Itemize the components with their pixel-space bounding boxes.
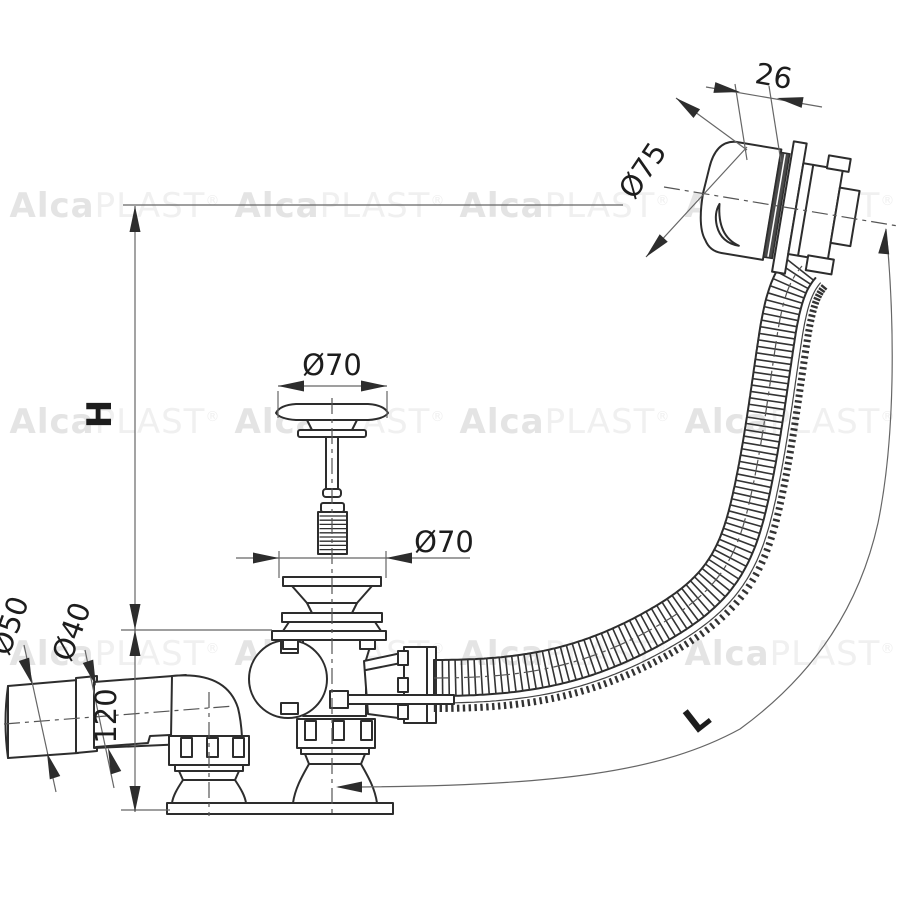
- hose-tooth: [787, 451, 794, 452]
- hose-tooth: [621, 674, 624, 680]
- hose-tooth: [771, 525, 778, 527]
- hose-tooth: [759, 561, 765, 564]
- hose-tooth: [810, 310, 817, 312]
- rod-block: [330, 691, 348, 708]
- dimension-arrow: [386, 553, 412, 564]
- hose-tooth: [522, 700, 523, 707]
- base-plate: [167, 803, 393, 814]
- hose-tooth: [761, 555, 767, 558]
- watermark-text: AlcaPLAST®: [685, 634, 896, 674]
- technical-drawing-page: AlcaPLAST®AlcaPLAST®AlcaPLAST®AlcaPLAST®…: [0, 0, 900, 900]
- hose-inner-edge: [434, 255, 788, 660]
- dimension-arrow: [673, 94, 700, 118]
- dim-label-plug-d70: Ø70: [302, 348, 362, 382]
- hose-tooth: [793, 412, 800, 413]
- hose-tooth: [534, 698, 535, 705]
- hose-tooth: [505, 702, 506, 709]
- hose-tooth: [746, 584, 752, 588]
- hose-tooth: [575, 689, 577, 696]
- hose-tooth: [790, 435, 797, 436]
- tee-nut-tooth: [398, 651, 408, 665]
- dim-label-strainer-d70: Ø70: [414, 525, 474, 559]
- hose-tooth: [593, 684, 595, 691]
- hose-tooth: [493, 703, 494, 710]
- hose-tooth: [742, 590, 748, 594]
- tee-nut-tooth: [398, 678, 408, 692]
- nut-slot: [181, 738, 192, 757]
- watermark-text: AlcaPLAST®: [460, 402, 671, 442]
- hose-tooth: [794, 407, 801, 408]
- hose-tooth: [805, 330, 812, 331]
- dim-label-120: 120: [89, 688, 123, 743]
- hose-tooth: [598, 682, 600, 689]
- hose-tooth: [804, 340, 811, 341]
- hose-tooth: [791, 429, 798, 430]
- dimension-arrow: [878, 228, 891, 255]
- hose-tooth: [528, 699, 529, 706]
- hose-tooth: [679, 644, 683, 650]
- hose-tooth: [791, 423, 798, 424]
- dimension-arrow: [278, 381, 304, 392]
- nut-slot: [233, 738, 244, 757]
- hose-rib: [723, 528, 757, 540]
- hose-tooth: [785, 463, 792, 464]
- hose-tooth: [789, 440, 796, 441]
- hose-tooth: [792, 418, 799, 419]
- hose-tooth: [806, 325, 813, 326]
- dim-label-l: L: [676, 697, 718, 742]
- knob-clamp: [806, 255, 834, 274]
- hose-tooth: [773, 519, 780, 521]
- bath-waste-overflow-drawing: AlcaPLAST®AlcaPLAST®AlcaPLAST®AlcaPLAST®…: [0, 0, 900, 900]
- hose-rib: [719, 539, 752, 553]
- hose-tooth: [756, 567, 762, 570]
- hose-tooth: [517, 701, 518, 708]
- hose-tooth: [800, 368, 807, 369]
- hose-tooth: [807, 320, 814, 321]
- hose-tooth: [710, 623, 714, 628]
- dimension-arrow: [253, 553, 279, 564]
- tee-nut-tooth: [398, 705, 408, 719]
- plate-tab: [360, 640, 375, 649]
- hose-tooth: [499, 703, 500, 710]
- nut-slot: [333, 721, 344, 740]
- hose-tooth: [812, 302, 819, 304]
- watermark-text: AlcaPLAST®: [10, 634, 221, 674]
- hose-tooth: [766, 543, 773, 545]
- hose-tooth: [788, 446, 795, 447]
- dim-label-h: H: [80, 400, 120, 428]
- hose-tooth: [786, 457, 793, 458]
- hose-tooth: [796, 395, 803, 396]
- hose-tooth: [803, 346, 810, 347]
- nut-slot: [305, 721, 316, 740]
- watermark-text: AlcaPLAST®: [10, 186, 221, 226]
- hose-tooth: [798, 379, 805, 380]
- hose-tooth: [604, 680, 606, 687]
- hose-tooth: [729, 605, 734, 610]
- hose-tooth: [734, 600, 739, 605]
- hose-tooth: [738, 595, 743, 599]
- hose-tooth: [815, 294, 821, 297]
- hose-tooth: [750, 579, 756, 583]
- hose-tooth: [811, 306, 818, 308]
- overflow-tee: [364, 647, 436, 723]
- hose-tooth: [610, 678, 612, 685]
- hose-tooth: [715, 619, 720, 624]
- nut-slot: [361, 721, 372, 740]
- hose-tooth: [802, 351, 809, 352]
- hose-axis: [434, 266, 802, 678]
- mounting-plate: [272, 631, 386, 640]
- hose-tooth: [801, 357, 808, 358]
- hose-tooth: [777, 502, 784, 504]
- hose-tooth: [581, 688, 583, 695]
- hose-tooth: [797, 384, 804, 385]
- hose-tooth: [587, 686, 589, 693]
- hose-tooth: [540, 697, 541, 704]
- dimension-arrow: [361, 381, 387, 392]
- hose-rib: [754, 366, 790, 371]
- elbow-corner: [171, 675, 242, 737]
- hose-tooth: [776, 508, 783, 510]
- hose-tooth: [778, 497, 785, 498]
- hose-rib: [760, 327, 795, 333]
- center-cup-flare: [293, 764, 377, 803]
- body-clip: [281, 703, 298, 714]
- hose-tooth: [720, 615, 725, 620]
- hose-tooth: [770, 531, 777, 533]
- dimension-arrow: [130, 786, 141, 812]
- hose-tooth: [814, 298, 820, 301]
- hose-tooth: [805, 335, 812, 336]
- hose-tooth: [674, 647, 678, 653]
- watermark-text: AlcaPLAST®: [235, 186, 446, 226]
- hose-tooth: [615, 676, 618, 683]
- hose-tooth: [784, 468, 791, 469]
- hose-tooth: [796, 390, 803, 391]
- hose-tooth: [546, 696, 547, 703]
- hose-tooth: [705, 627, 709, 633]
- hose-tooth: [725, 610, 730, 615]
- center-cup-neck: [305, 754, 365, 764]
- hose-tooth: [552, 695, 553, 702]
- hose-tooth: [753, 573, 759, 576]
- hose-tooth: [809, 315, 816, 317]
- hose-tooth: [779, 491, 786, 492]
- hose-tooth: [558, 694, 560, 701]
- hose-tooth: [783, 474, 790, 475]
- hose-tooth: [569, 691, 571, 698]
- hose-tooth: [764, 549, 771, 551]
- hose-tooth: [795, 401, 802, 402]
- strainer-assembly: [272, 577, 386, 649]
- knob-clamp: [827, 155, 851, 171]
- hose-tooth: [564, 692, 566, 699]
- dim-label-26: 26: [753, 56, 795, 96]
- dimension-arrow: [130, 604, 141, 630]
- rod: [348, 695, 454, 704]
- hose-tooth: [781, 485, 788, 486]
- hose-tooth: [768, 537, 775, 539]
- hose-tooth: [774, 514, 781, 516]
- hose-rib: [461, 660, 462, 696]
- plate-tab: [283, 640, 298, 649]
- hose-tooth: [799, 373, 806, 374]
- hose-tooth: [511, 701, 512, 708]
- hose-tooth: [800, 362, 807, 363]
- hose-tooth: [782, 480, 789, 481]
